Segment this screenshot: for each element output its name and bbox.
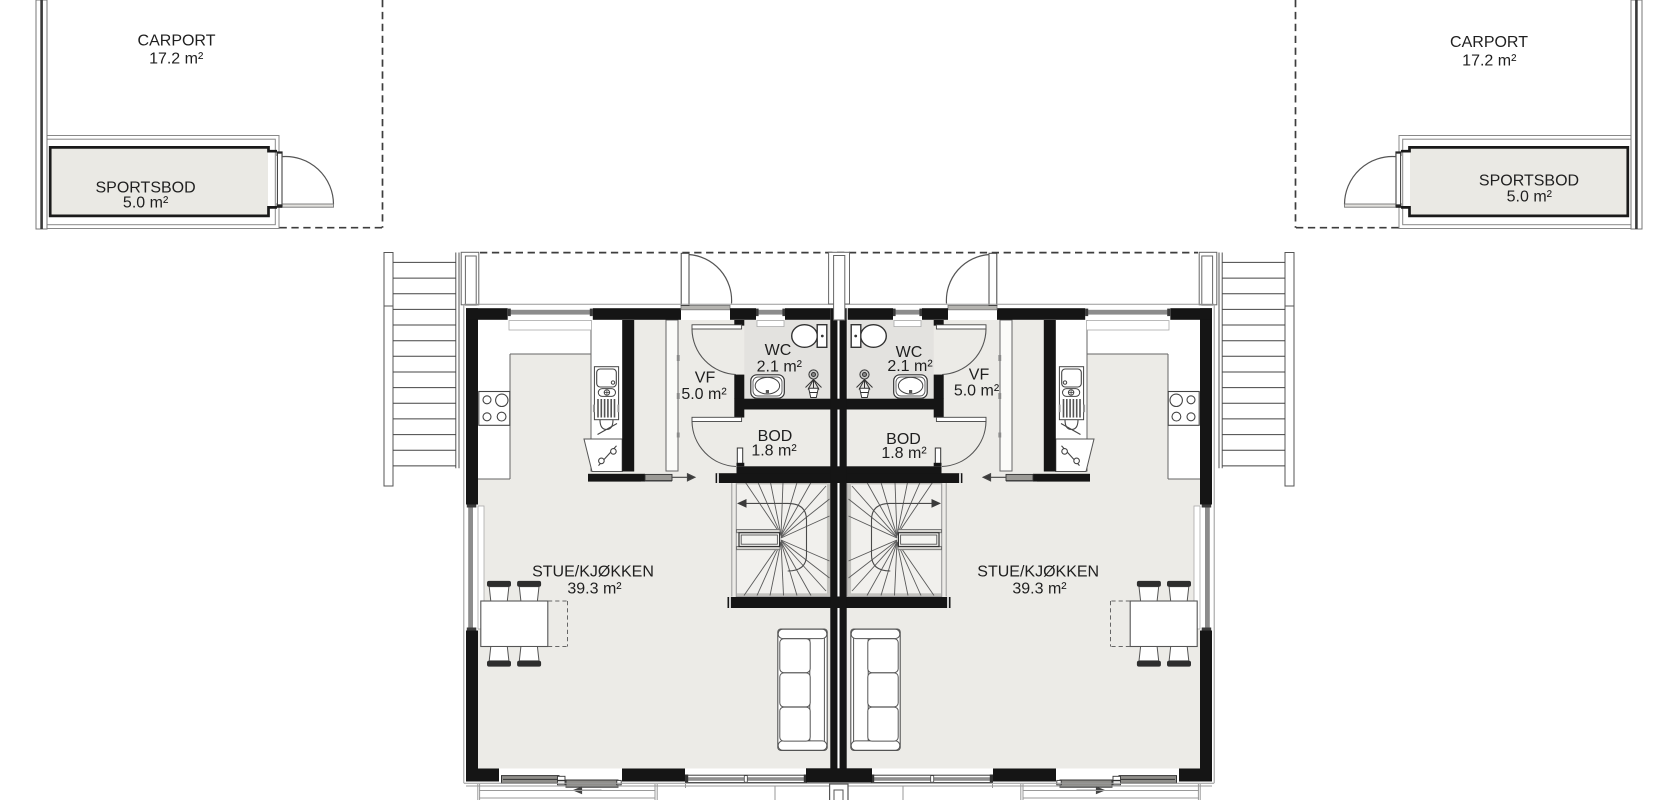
svg-text:CARPORT: CARPORT — [1450, 34, 1528, 51]
svg-text:STUE/KJØKKEN: STUE/KJØKKEN — [532, 563, 654, 580]
svg-text:2.1 m²: 2.1 m² — [757, 358, 803, 375]
svg-text:39.3 m²: 39.3 m² — [1012, 581, 1067, 598]
svg-text:CARPORT: CARPORT — [138, 33, 216, 50]
svg-text:5.0 m²: 5.0 m² — [954, 383, 1000, 400]
svg-text:17.2 m²: 17.2 m² — [1462, 53, 1517, 70]
svg-text:5.0 m²: 5.0 m² — [1507, 188, 1553, 205]
svg-text:SPORTSBOD: SPORTSBOD — [1479, 173, 1579, 190]
svg-text:WC: WC — [765, 342, 792, 359]
svg-text:2.1 m²: 2.1 m² — [887, 358, 933, 375]
svg-text:39.3 m²: 39.3 m² — [567, 581, 622, 598]
svg-text:1.8 m²: 1.8 m² — [751, 443, 797, 460]
svg-text:VF: VF — [695, 370, 716, 387]
svg-text:VF: VF — [969, 367, 990, 384]
svg-text:5.0 m²: 5.0 m² — [123, 195, 169, 212]
svg-text:1.8 m²: 1.8 m² — [881, 445, 927, 462]
svg-text:STUE/KJØKKEN: STUE/KJØKKEN — [977, 563, 1099, 580]
svg-text:5.0 m²: 5.0 m² — [681, 386, 727, 403]
svg-text:17.2 m²: 17.2 m² — [149, 51, 204, 68]
